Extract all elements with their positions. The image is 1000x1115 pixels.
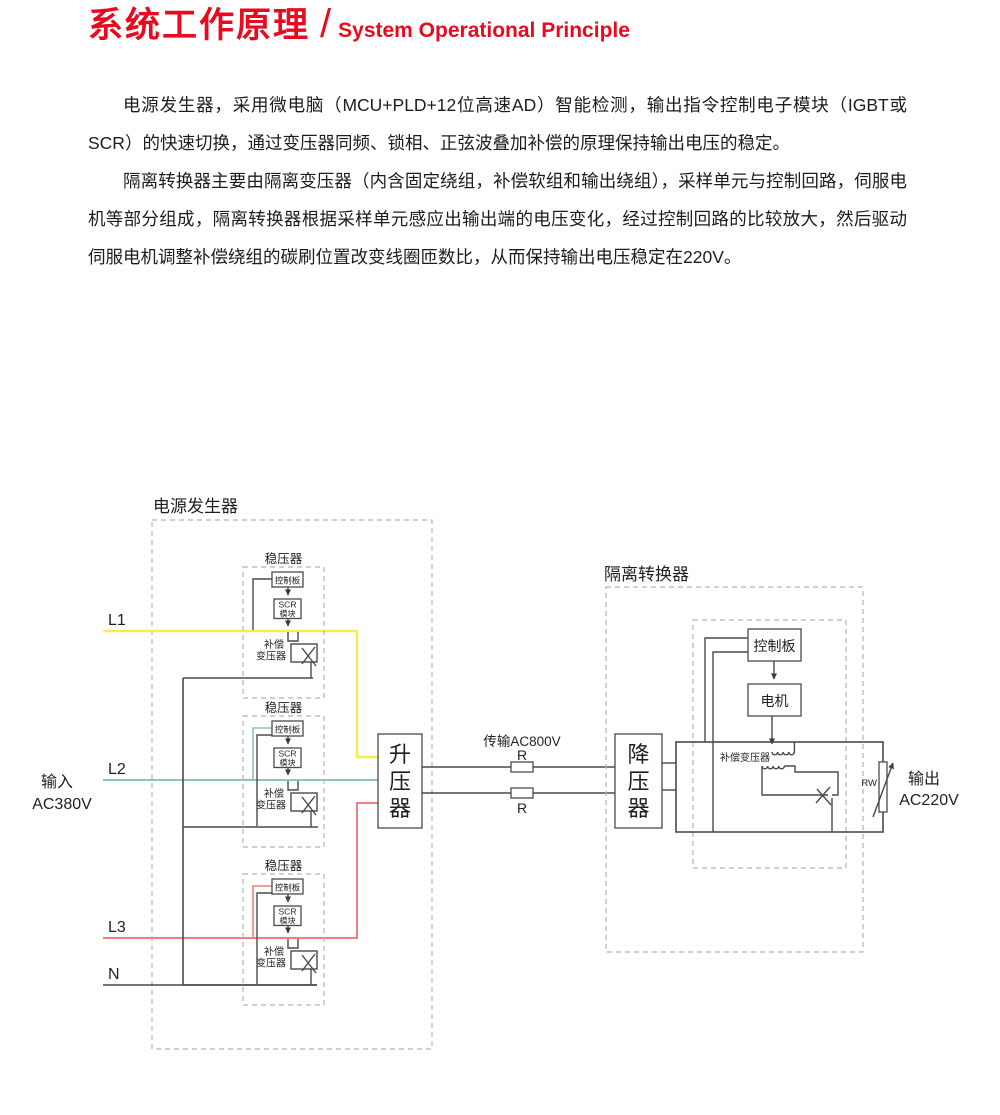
l1-phase-line: [103, 631, 378, 757]
stepdown-char-3: 器: [627, 796, 649, 821]
stepdown-char-2: 压: [627, 769, 649, 794]
regulator-title: 稳压器: [265, 858, 303, 873]
comp-transformer-label-1: 补偿: [264, 787, 284, 800]
title-slash-divider: /: [320, 2, 331, 47]
system-schematic: 电源发生器 L1 L2 L3 N 输入 AC380V 稳压器 控制板 SCR: [0, 480, 1000, 1060]
resistor-top-label: R: [517, 747, 527, 763]
transmission-section: 传输AC800V R R: [422, 734, 615, 816]
paragraph-isolator: 隔离转换器主要由隔离变压器（内含固定绕组，补偿软组和输出绕组），采样单元与控制回…: [88, 162, 907, 276]
output-loop: [676, 742, 883, 832]
resistor-bottom-label: R: [517, 800, 527, 816]
comp-transformer-label-2: 变压器: [256, 957, 286, 970]
regulator-module-l2: 稳压器 控制板 SCR 模块 补偿 变压器: [183, 700, 324, 847]
scr-sublabel: 模块: [280, 916, 296, 926]
rw-body: [879, 762, 887, 812]
comp-transformer-symbol: [183, 781, 318, 827]
booster-char-1: 升: [389, 742, 411, 767]
body-text: 电源发生器，采用微电脑（MCU+PLD+12位高速AD）智能检测，输出指令控制电…: [88, 86, 907, 276]
booster-char-2: 压: [389, 769, 411, 794]
l3-phase-line: [103, 803, 378, 938]
resistor-top: [511, 762, 533, 772]
l1-label: L1: [108, 612, 126, 629]
regulator-title: 稳压器: [265, 551, 303, 566]
n-label: N: [108, 966, 120, 983]
comp-transformer-label-1: 补偿: [264, 638, 284, 651]
scr-sublabel: 模块: [280, 758, 296, 768]
comp-transformer-label-1: 补偿: [264, 945, 284, 958]
rw-label: RW: [861, 778, 877, 789]
isolator-control-board-label: 控制板: [754, 638, 796, 654]
stepdown-char-1: 降: [627, 742, 649, 767]
comp-transformer-label-2: 变压器: [256, 799, 286, 812]
output-label: 输出: [908, 770, 940, 788]
input-phase-lines: L1 L2 L3 N 输入 AC380V: [32, 612, 378, 985]
isolator-comp-transformer-label: 补偿变压器: [720, 751, 770, 764]
output-voltage-label: AC220V: [899, 792, 959, 809]
input-label: 输入: [41, 773, 73, 791]
scr-sublabel: 模块: [280, 609, 296, 619]
input-voltage-label: AC380V: [32, 796, 92, 813]
isolator-transformer-symbol: [762, 742, 838, 832]
l3-label: L3: [108, 919, 126, 936]
isolator-title: 隔离转换器: [604, 565, 689, 584]
comp-transformer-label-2: 变压器: [256, 650, 286, 663]
scr-label: SCR: [279, 907, 297, 917]
comp-transformer-symbol: [183, 939, 317, 985]
l2-label: L2: [108, 761, 126, 778]
page-title: 系统工作原理 / System Operational Principle: [88, 2, 630, 48]
paragraph-generator: 电源发生器，采用微电脑（MCU+PLD+12位高速AD）智能检测，输出指令控制电…: [88, 86, 907, 162]
regulator-title: 稳压器: [265, 700, 303, 715]
regulator-module-l1: 稳压器 控制板 SCR 模块 补偿 变压器: [183, 551, 324, 698]
control-board-label: 控制板: [275, 576, 301, 586]
control-sense-line-top: [705, 638, 748, 742]
stepdown-unit: 降 压 器: [615, 734, 662, 828]
comp-transformer-symbol: [183, 632, 317, 678]
control-board-label: 控制板: [275, 883, 301, 893]
manual-page: 系统工作原理 / System Operational Principle 电源…: [0, 0, 1000, 1115]
scr-label: SCR: [279, 749, 297, 759]
booster-char-3: 器: [389, 796, 411, 821]
booster-unit: 升 压 器: [378, 734, 422, 828]
page-title-zh: 系统工作原理: [88, 4, 310, 48]
generator-title: 电源发生器: [153, 497, 238, 516]
control-board-label: 控制板: [275, 725, 301, 735]
motor-label: 电机: [761, 693, 789, 709]
sample-tap-line: [253, 579, 272, 630]
scr-label: SCR: [279, 600, 297, 610]
regulator-module-l3: 稳压器 控制板 SCR 模块 补偿 变压器: [183, 858, 324, 1005]
rw-rheostat: RW: [861, 762, 893, 817]
page-title-en: System Operational Principle: [338, 19, 630, 43]
resistor-bottom: [511, 788, 533, 798]
